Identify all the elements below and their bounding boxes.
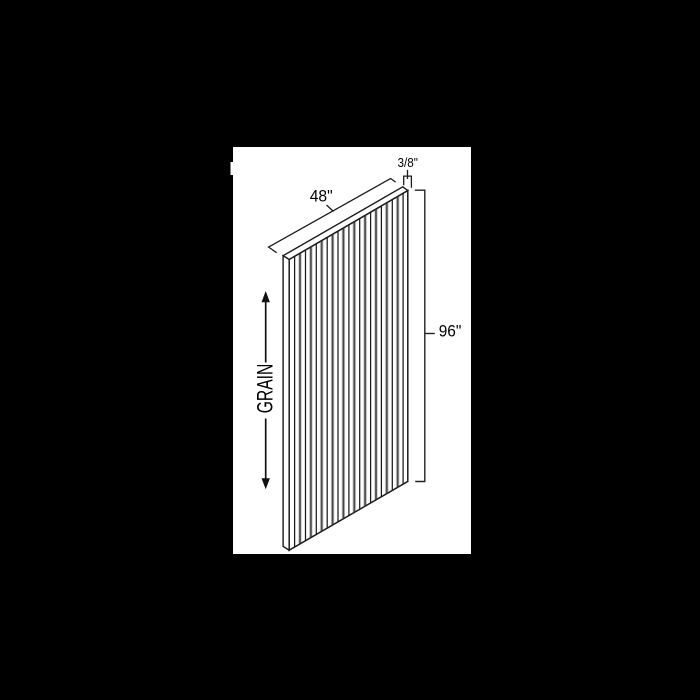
svg-text:48": 48" — [310, 187, 333, 206]
svg-text:3/8": 3/8" — [398, 155, 419, 170]
svg-text:GRAIN: GRAIN — [252, 364, 277, 414]
svg-text:96": 96" — [439, 322, 462, 341]
